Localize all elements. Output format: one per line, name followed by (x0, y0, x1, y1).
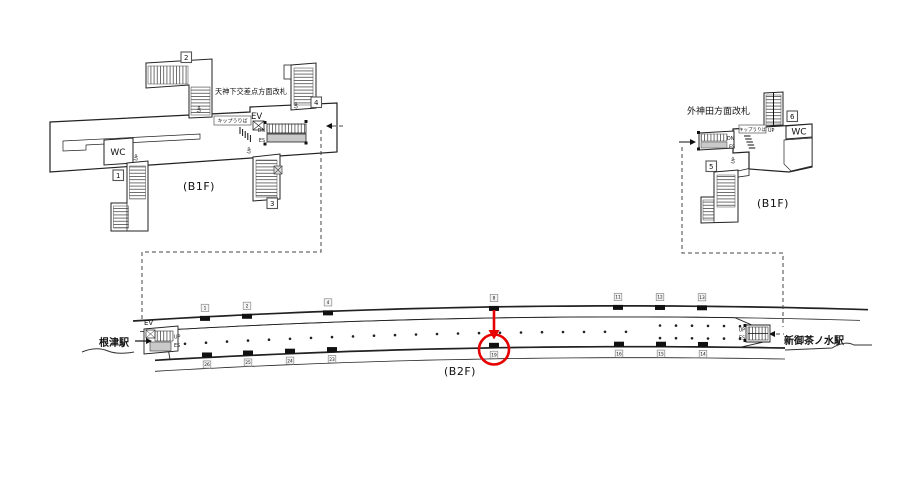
platform-es-label: ES (174, 343, 180, 349)
exit1-number: 1 (116, 172, 120, 180)
position-board (613, 305, 623, 310)
es-label: ES (729, 145, 735, 151)
pillar-dot (691, 337, 694, 340)
exit3-elevator-icon (274, 166, 282, 174)
position-board (323, 310, 333, 315)
wc-label: WC (791, 128, 806, 138)
pillar-dot (707, 325, 710, 328)
position-number: 12 (657, 295, 663, 301)
platform-ev-label: EV (144, 319, 153, 327)
exit6-up-label: UP (768, 128, 775, 134)
exit5-up-label: UP (730, 157, 737, 165)
position-board (698, 342, 708, 347)
platform-up-stairs-treads (155, 331, 173, 341)
pillar-dot (457, 332, 460, 335)
pillar-dot (226, 340, 229, 343)
pillar-dot (499, 332, 502, 335)
floor-label: (B1F) (757, 197, 789, 210)
position-number: 23 (329, 357, 335, 363)
pillar-dot (310, 337, 313, 340)
exit2-number: 2 (184, 54, 188, 62)
pillar-dot (604, 331, 607, 334)
exit5-number: 5 (709, 163, 713, 171)
pillar-dot (723, 337, 726, 340)
right-up-label: UP (739, 328, 746, 334)
position-board (489, 343, 499, 348)
exit3-stairs-treads (256, 160, 277, 197)
pillar-dot (541, 331, 544, 334)
pillar-dot (394, 334, 397, 337)
position-board (327, 347, 337, 352)
position-number: 13 (699, 295, 705, 301)
pillar-dot (268, 338, 271, 341)
pillar-dot (352, 335, 355, 338)
exit4-hook (284, 65, 291, 79)
pillar-dot (562, 331, 565, 334)
right-station-label: 新御茶ノ水駅 (784, 334, 845, 347)
position-board (614, 342, 624, 347)
position-number: 11 (615, 295, 621, 301)
pillar-dot (739, 325, 742, 328)
down-escalator (267, 134, 306, 142)
ticket-office-label: キップうりば (739, 126, 766, 133)
gate-name-label: 天神下交差点方面改札 (215, 87, 287, 96)
pillar-dot (373, 334, 376, 337)
position-number: 15 (658, 351, 664, 357)
exit5-stairs-treads (717, 175, 735, 207)
exit6-number: 6 (790, 113, 795, 121)
position-number: 1 (204, 306, 207, 312)
exit3-number: 3 (270, 200, 274, 208)
ev-label: EV (251, 112, 262, 122)
ticket-office-label: キップうりば (217, 118, 247, 125)
pillar-dot (659, 324, 662, 327)
pillar-dot (289, 338, 292, 341)
pillar-dot (583, 331, 586, 334)
pillar-dot (707, 337, 710, 340)
entry-arrowhead (690, 139, 696, 145)
position-board (697, 305, 707, 310)
exit5-link (738, 169, 749, 178)
pillar-dot (625, 331, 628, 334)
exit2-stairs-treads-h (148, 66, 188, 84)
platform-up-label: UP (174, 335, 181, 341)
platform-elevator-icon (146, 330, 155, 338)
right-es-label: ES (739, 336, 745, 342)
wc-label: WC (110, 148, 125, 158)
pillar-dot (331, 336, 334, 339)
position-board (200, 316, 210, 321)
pillar-dot (675, 324, 678, 327)
side-room (784, 138, 812, 171)
pillar-dot (659, 337, 662, 340)
pillar-dot (675, 337, 678, 340)
position-board (285, 349, 295, 354)
exit4-number: 4 (314, 99, 319, 107)
exit1-stairs-treads (130, 166, 146, 199)
dn-stairs-treads (701, 134, 727, 141)
position-number: 25 (245, 360, 251, 366)
position-board (202, 352, 212, 357)
position-number: 4 (327, 300, 330, 306)
gate-name-label: 外神田方面改札 (687, 105, 750, 117)
position-number: 26 (204, 362, 210, 368)
pillar-dot (478, 332, 481, 335)
position-number: 2 (246, 303, 249, 309)
platform-slab (165, 317, 768, 360)
exit5-landing-treads (703, 200, 714, 220)
exit1-landing-treads (114, 206, 129, 228)
left-station-label: 根津駅 (99, 336, 130, 349)
pillar-dot (247, 339, 250, 342)
position-number: 14 (700, 352, 706, 358)
floor-label: (B1F) (183, 180, 215, 193)
pillar-dot (184, 343, 187, 346)
b1f-left-concourse: WC UP 1 UP 2 UP 3 UP 4 EV (50, 52, 344, 321)
station-map: WC UP 1 UP 2 UP 3 UP 4 EV (0, 0, 919, 491)
position-number: 16 (616, 351, 622, 357)
exit4-stairs-treads (294, 68, 313, 105)
position-board (656, 342, 666, 347)
position-number: 8 (493, 296, 496, 302)
position-board (243, 351, 253, 356)
pillar-dot (205, 341, 208, 344)
platform-up-escalator (150, 342, 171, 351)
pillar-dot (520, 331, 523, 334)
position-board (242, 314, 252, 319)
position-number: 24 (287, 358, 293, 364)
dn-label: DN (258, 128, 266, 134)
down-stairs-treads (267, 124, 306, 133)
dn-label: DN (727, 136, 735, 142)
dn-escalator (701, 142, 727, 148)
position-number: 19 (491, 353, 497, 359)
pillar-dot (436, 333, 439, 336)
pillar-dot (723, 325, 726, 328)
pillar-dot (415, 333, 418, 336)
floor-label: (B2F) (444, 365, 476, 378)
es-label: ES (259, 138, 265, 144)
position-board (655, 305, 665, 310)
left-ground-wave (82, 349, 134, 354)
pillar-dot (691, 324, 694, 327)
